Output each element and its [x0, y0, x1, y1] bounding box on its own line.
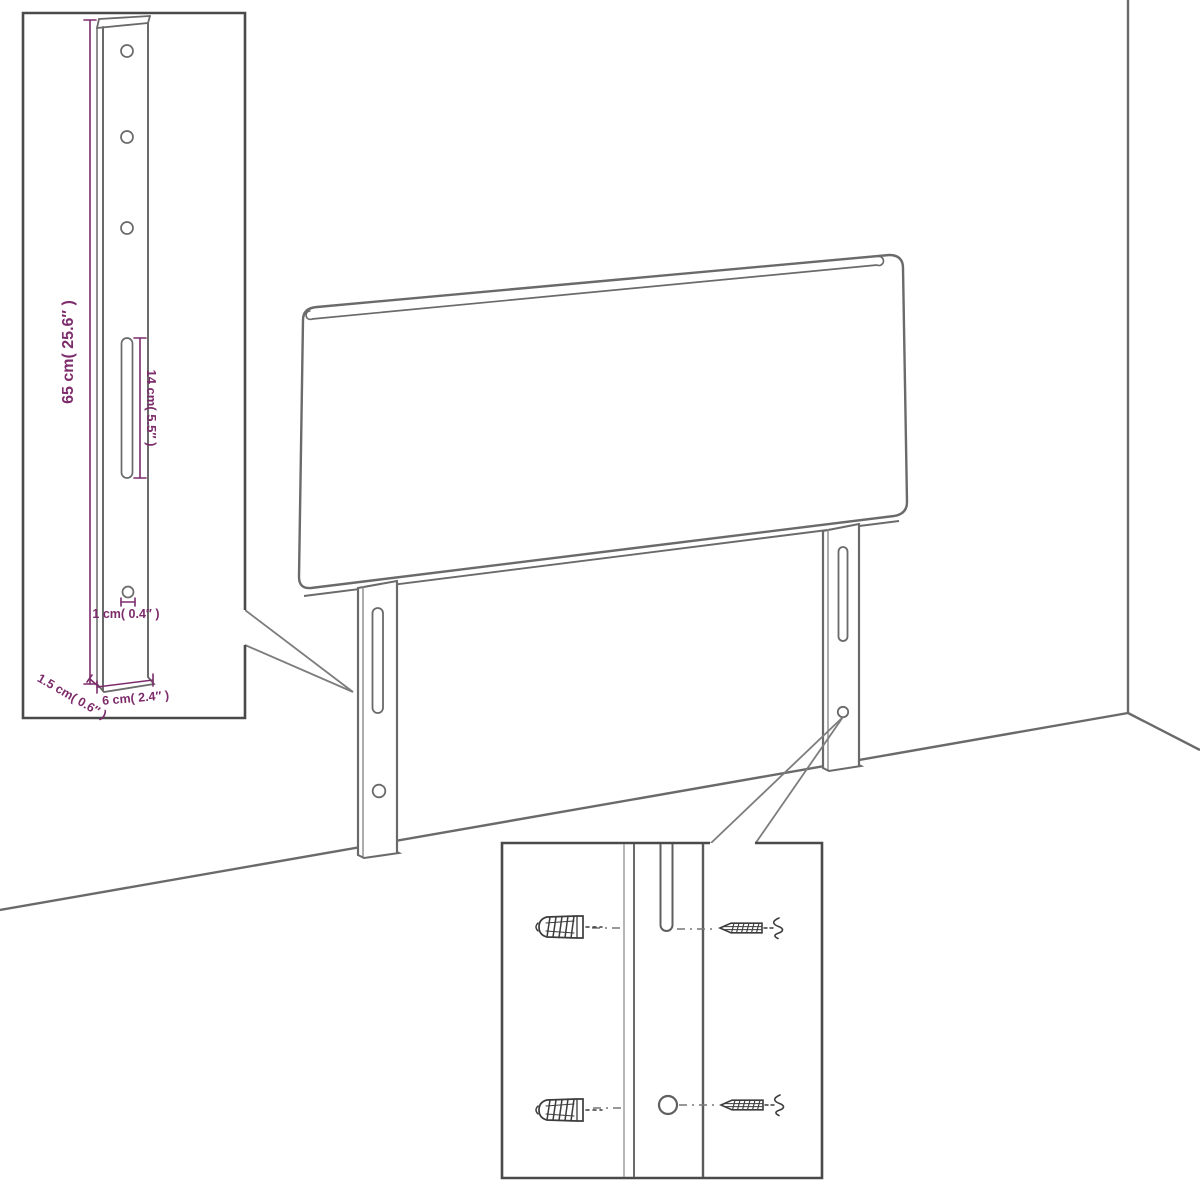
headboard-panel [299, 255, 907, 596]
product-dimension-diagram: 65 cm( 25.6″ ) 14 cm( 5.5″ ) 1 cm( 0.4″ … [0, 0, 1200, 1200]
panel-outline [299, 255, 907, 588]
dimension-slot-length: 14 cm( 5.5″ ) [144, 369, 159, 446]
headboard-leg-left [358, 581, 399, 858]
inset-leg-detail: 65 cm( 25.6″ ) 14 cm( 5.5″ ) 1 cm( 0.4″ … [23, 13, 245, 722]
leg-screw-hole [373, 785, 386, 798]
callout-wedge-mounting-detail [710, 717, 843, 844]
leg-screw-hole [838, 707, 848, 717]
dimension-hole-diameter: 1 cm( 0.4″ ) [92, 607, 159, 621]
post-hole-3 [121, 222, 133, 234]
post-hole-2 [121, 131, 133, 143]
dimension-post-height: 65 cm( 25.6″ ) [60, 300, 77, 404]
inset-mounting-detail [502, 843, 822, 1178]
post-slot [122, 338, 133, 478]
callout-wedge-leg-detail [245, 610, 353, 692]
inset-border [502, 843, 822, 1178]
floor-line-right [1128, 713, 1200, 750]
headboard-leg-right [823, 524, 861, 771]
post-hole-bottom [123, 587, 134, 598]
post-hole-1 [121, 45, 133, 57]
leg-slot [839, 547, 848, 641]
leg-slot [373, 608, 384, 713]
